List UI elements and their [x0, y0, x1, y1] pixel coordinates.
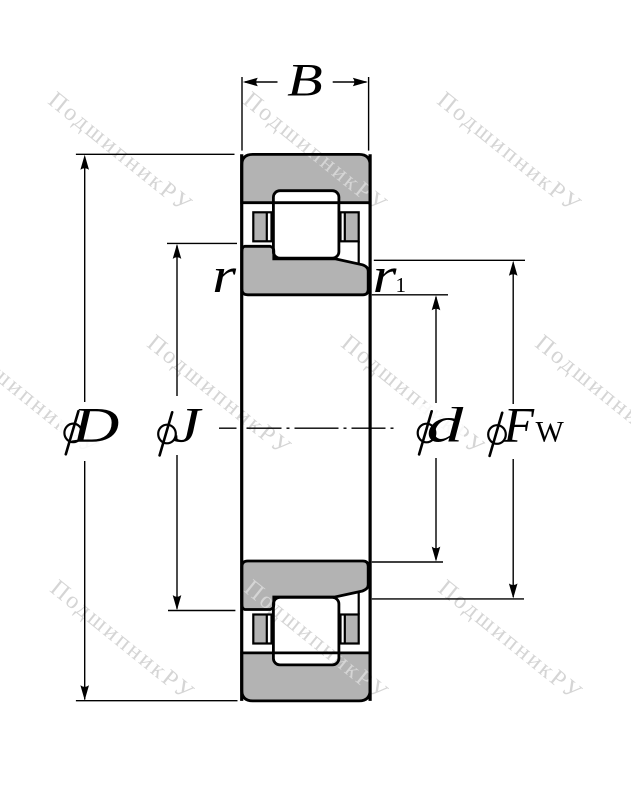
svg-text:1: 1: [396, 273, 407, 297]
svg-text:W: W: [536, 416, 565, 449]
svg-text:B: B: [287, 54, 323, 106]
svg-text:J: J: [173, 397, 203, 453]
svg-text:F: F: [503, 397, 535, 453]
svg-text:D: D: [71, 397, 120, 453]
svg-text:r: r: [212, 247, 236, 303]
svg-text:d: d: [427, 397, 465, 453]
svg-text:r: r: [373, 247, 397, 303]
